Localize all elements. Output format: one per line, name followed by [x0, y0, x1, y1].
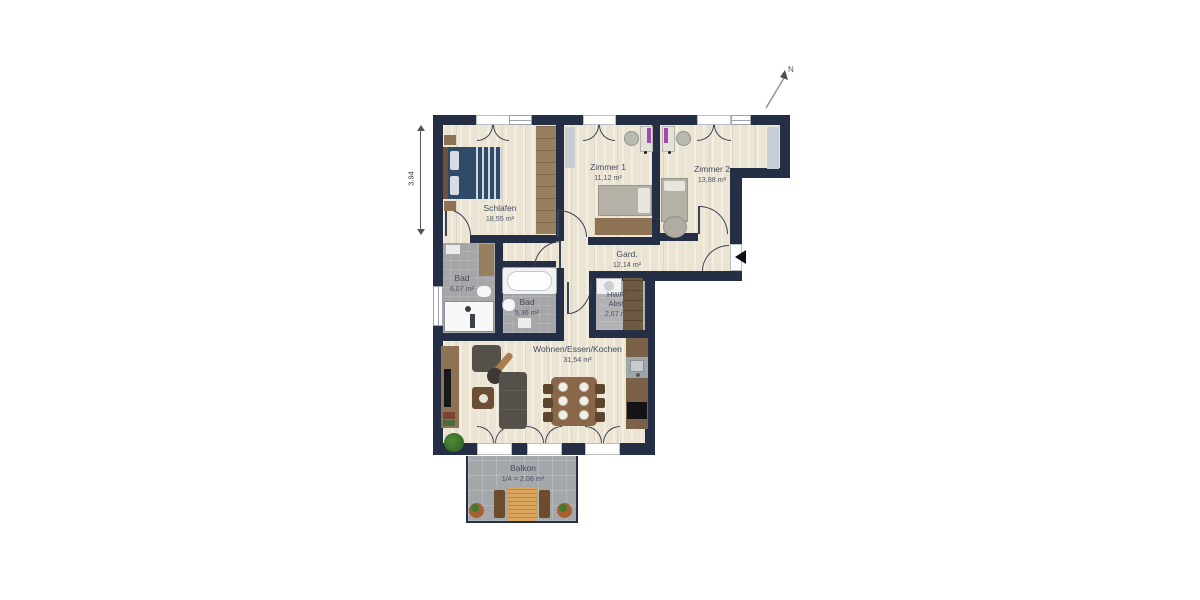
floor-plan: Schlafen 18,55 m² Zimmer 1 11,12 m² Zimm…	[0, 0, 1200, 600]
dining-chair	[595, 412, 605, 422]
shower-head	[465, 306, 471, 312]
dining-chair	[543, 412, 553, 422]
coffee-table-plate	[479, 394, 488, 403]
wall-zimmer1-bottom	[588, 237, 660, 245]
room-name: Zimmer 2	[674, 164, 750, 175]
wall-schlafen-bottom	[470, 235, 556, 243]
plate	[558, 410, 568, 420]
room-label-schlafen: Schlafen 18,55 m²	[455, 203, 545, 223]
room-name: HWR/	[592, 290, 642, 299]
door-leaf	[559, 241, 561, 268]
wall-bottom-seg3	[562, 443, 585, 455]
room-area: 31,54 m²	[495, 355, 660, 364]
office-chair	[624, 131, 639, 146]
plate	[558, 382, 568, 392]
room-area: 6,07 m²	[434, 284, 490, 293]
room-label-wohnen: Wohnen/Essen/Kochen 31,54 m²	[495, 344, 660, 364]
dimension-line	[420, 127, 421, 233]
pillow	[450, 176, 459, 195]
room-label-gard: Gard. 12,14 m²	[589, 249, 665, 269]
window-zimmer2	[731, 115, 751, 125]
bed-duvet-stripes	[472, 147, 502, 199]
room-label-balkon: Balkon 1/4 = 2,06 m²	[477, 463, 569, 483]
bath-cabinet	[479, 244, 494, 276]
desk-lamp	[664, 128, 668, 143]
room-name: Bad	[434, 273, 490, 284]
room-area: 2,67 m²	[592, 309, 642, 318]
tv	[444, 369, 451, 407]
wall-right-entry	[730, 178, 742, 244]
window-schlafen	[509, 115, 532, 125]
nightstand	[444, 135, 456, 145]
room-label-bad-klein: Bad 5,36 m²	[499, 297, 555, 317]
round-chair	[663, 216, 687, 238]
shower-fixture	[470, 314, 475, 328]
bathtub-basin	[507, 271, 552, 291]
wall-bottom-seg2	[512, 443, 527, 455]
north-label: N	[788, 65, 794, 74]
dining-chair	[543, 384, 553, 394]
dimension-arrow-down	[417, 229, 425, 235]
wall-hwr-bottom	[589, 330, 650, 338]
room-area: 5,36 m²	[499, 308, 555, 317]
dining-chair	[595, 398, 605, 408]
washbasin	[445, 244, 461, 255]
balcony-bench	[539, 490, 550, 518]
plant-pot-leaves	[471, 504, 479, 512]
plate	[579, 382, 589, 392]
door-opening-living1	[477, 443, 512, 455]
room-name: Schlafen	[455, 203, 545, 214]
room-label-bad-gross: Bad 6,07 m²	[434, 273, 490, 293]
kitchen-faucet	[636, 373, 640, 377]
room-area: 1/4 = 2,06 m²	[477, 474, 569, 483]
room-name: Zimmer 1	[570, 162, 646, 173]
dresser	[595, 218, 652, 235]
balcony-table	[507, 487, 537, 521]
dimension-value: 3.94	[407, 168, 416, 190]
plate	[579, 410, 589, 420]
window-sill-zimmer2	[767, 127, 779, 169]
room-area: 11,12 m²	[570, 173, 646, 182]
shelf-deco	[443, 412, 455, 419]
desk-dot	[668, 151, 671, 154]
office-chair	[676, 131, 691, 146]
dining-chair	[595, 384, 605, 394]
north-arrow-head	[780, 70, 788, 80]
plate	[558, 396, 568, 406]
room-label-zimmer1: Zimmer 1 11,12 m²	[570, 162, 646, 182]
entrance-arrow-icon	[735, 250, 746, 264]
dimension-arrow-up	[417, 125, 425, 131]
door-leaf	[698, 206, 700, 234]
room-area: 18,55 m²	[455, 214, 545, 223]
room-label-hwr: HWR/ Abst. 2,67 m²	[592, 290, 642, 318]
pillow	[638, 188, 650, 213]
desk-lamp	[647, 128, 651, 143]
door-opening-zimmer1	[583, 115, 616, 125]
door-opening-zimmer2	[697, 115, 731, 125]
room-name: Abst.	[592, 299, 642, 308]
cooktop	[627, 402, 647, 419]
north-arrow: N	[752, 58, 798, 114]
shelf-deco	[443, 420, 455, 426]
wall-right-top	[780, 115, 790, 168]
door-opening-schlafen-balcony	[476, 115, 510, 125]
room-name: Balkon	[477, 463, 569, 474]
door-opening-living3	[585, 443, 620, 455]
wall-living-top	[441, 333, 564, 341]
washbasin	[517, 317, 532, 329]
pillow	[450, 151, 459, 170]
plant	[444, 433, 464, 452]
room-area: 12,14 m²	[589, 260, 665, 269]
door-leaf	[557, 210, 559, 237]
room-label-zimmer2: Zimmer 2 13,88 m²	[674, 164, 750, 184]
room-area: 13,88 m²	[674, 175, 750, 184]
door-leaf	[445, 209, 447, 236]
plant-pot-leaves	[559, 504, 567, 512]
room-name: Wohnen/Essen/Kochen	[495, 344, 660, 355]
dining-chair	[543, 398, 553, 408]
room-name: Gard.	[589, 249, 665, 260]
desk-dot	[644, 151, 647, 154]
room-name: Bad	[499, 297, 555, 308]
door-opening-living2	[527, 443, 562, 455]
wall-zimmer1-zimmer2	[652, 125, 660, 237]
balcony-bench	[494, 490, 505, 518]
plate	[579, 396, 589, 406]
door-leaf	[567, 282, 569, 314]
wall-corridor-lower	[556, 268, 564, 341]
sofa	[499, 372, 527, 429]
